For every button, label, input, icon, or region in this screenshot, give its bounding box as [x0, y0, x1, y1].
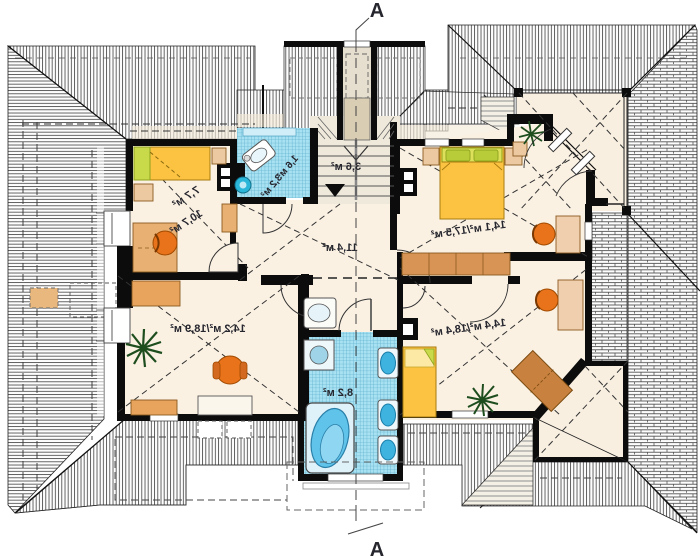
svg-text:14,2 м²/18,9 м²: 14,2 м²/18,9 м² — [170, 323, 246, 335]
svg-text:3,6 м²: 3,6 м² — [331, 161, 361, 173]
svg-text:A: A — [370, 539, 384, 557]
svg-text:8,2 м²: 8,2 м² — [323, 387, 353, 399]
svg-text:A: A — [370, 0, 384, 22]
svg-text:11,4 м²: 11,4 м² — [322, 242, 358, 254]
